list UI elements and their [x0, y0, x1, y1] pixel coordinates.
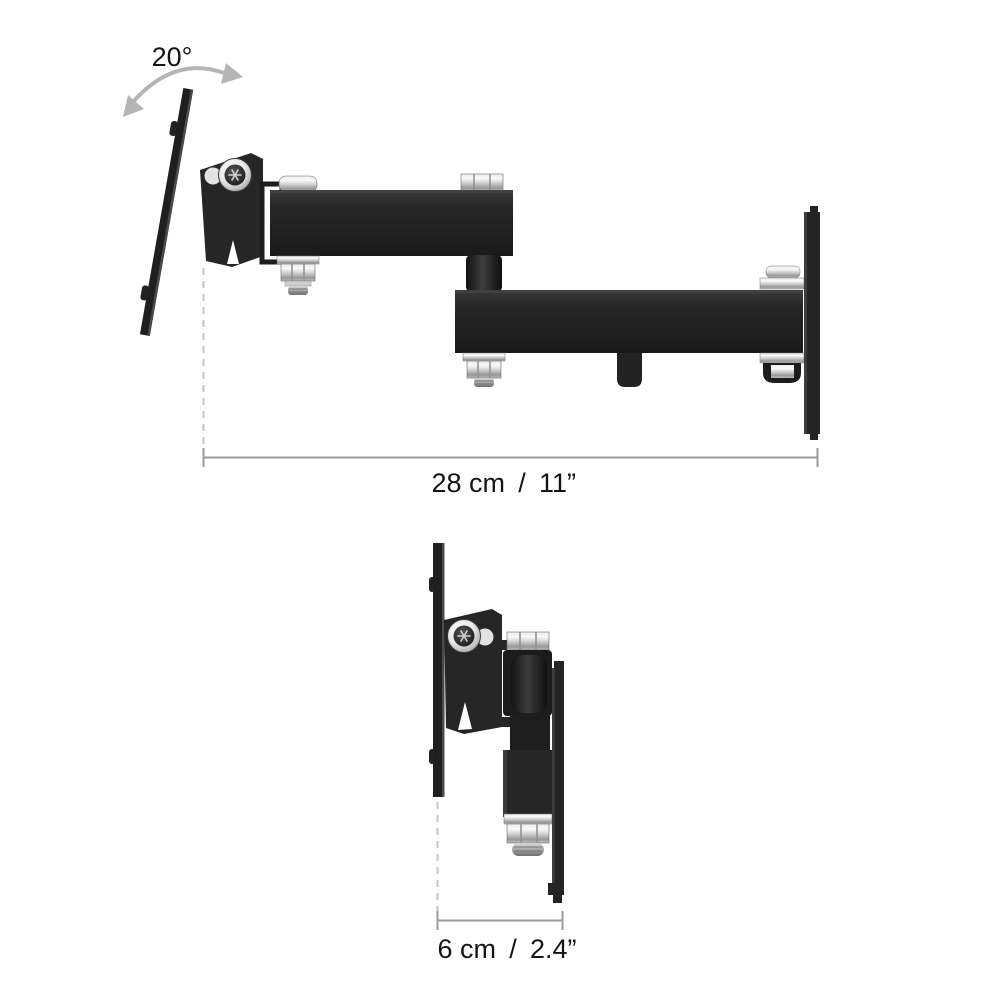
pivot-bolt-icon [219, 159, 252, 192]
tilt-arrow-left-head-icon [123, 95, 144, 117]
arm1-lock-nut [277, 256, 319, 295]
wall-plate-top-view [804, 206, 820, 440]
hinge-lower-block-highlight [503, 750, 507, 817]
wall-plate-edge-highlight [804, 212, 807, 434]
hinge-lower-block [503, 750, 554, 817]
wall-joint-washer-bottom [760, 353, 804, 363]
top-view: 20° [123, 42, 820, 498]
side-view: 6 cm / 2.4” [429, 543, 577, 964]
arm2-lock-nut [463, 353, 505, 387]
arm1-end-hex-bolt [461, 174, 503, 191]
hinge-bottom-nut [504, 814, 552, 856]
pivot-bolt-icon [448, 620, 481, 653]
product-diagram-canvas: 20° [0, 0, 1000, 1000]
hinge-top-hex-bolt [507, 632, 549, 650]
arm1-top-edge [270, 190, 513, 193]
dimension-separator: / [509, 934, 517, 964]
wall-joint-bolt-dome [766, 266, 800, 278]
wall-plate-tab-bottom [553, 895, 562, 903]
wall-joint-washer-top [760, 278, 804, 289]
hinge-barrel-cylinder [511, 655, 547, 713]
tilt-arrow-arc [132, 68, 224, 103]
dimension-metric-label: 6 cm [437, 934, 496, 964]
wall-joint-nut-face [771, 365, 794, 378]
wall-plate-foot [548, 883, 564, 895]
dimension-imperial-label: 2.4” [530, 934, 577, 964]
dimension-metric-label: 28 cm [431, 468, 505, 498]
arm2-body [455, 290, 803, 353]
dimension-top-view: 28 cm / 11” [204, 448, 819, 498]
product-diagram: 20° [0, 0, 1000, 1000]
tv-plate-side-view [429, 543, 445, 797]
arm1-pivot-bolt-head [279, 176, 317, 192]
cable-clip-tab [617, 353, 642, 387]
bracket-link-lower [480, 717, 512, 727]
arm1-body [270, 190, 513, 256]
hinge-assembly-side-view [503, 632, 554, 856]
dimension-side-view: 6 cm / 2.4” [437, 911, 576, 964]
plate-edge-highlight [442, 543, 445, 797]
wall-plate-edge-highlight [552, 668, 555, 885]
dimension-imperial-label: 11” [539, 468, 576, 498]
tilt-bracket-side-view [444, 609, 513, 734]
tv-plate-top-view [134, 87, 193, 336]
arm2-top-edge [455, 290, 803, 293]
tilt-angle-label: 20° [152, 42, 193, 72]
plate-edge-highlight [147, 89, 193, 336]
hinge-collar [510, 714, 550, 752]
arm-segment-2 [455, 290, 803, 387]
dimension-separator: / [518, 468, 526, 498]
elbow-joint [466, 255, 502, 292]
tilt-arrow-right-head-icon [221, 63, 243, 84]
tilt-bracket-top-view [200, 153, 282, 267]
